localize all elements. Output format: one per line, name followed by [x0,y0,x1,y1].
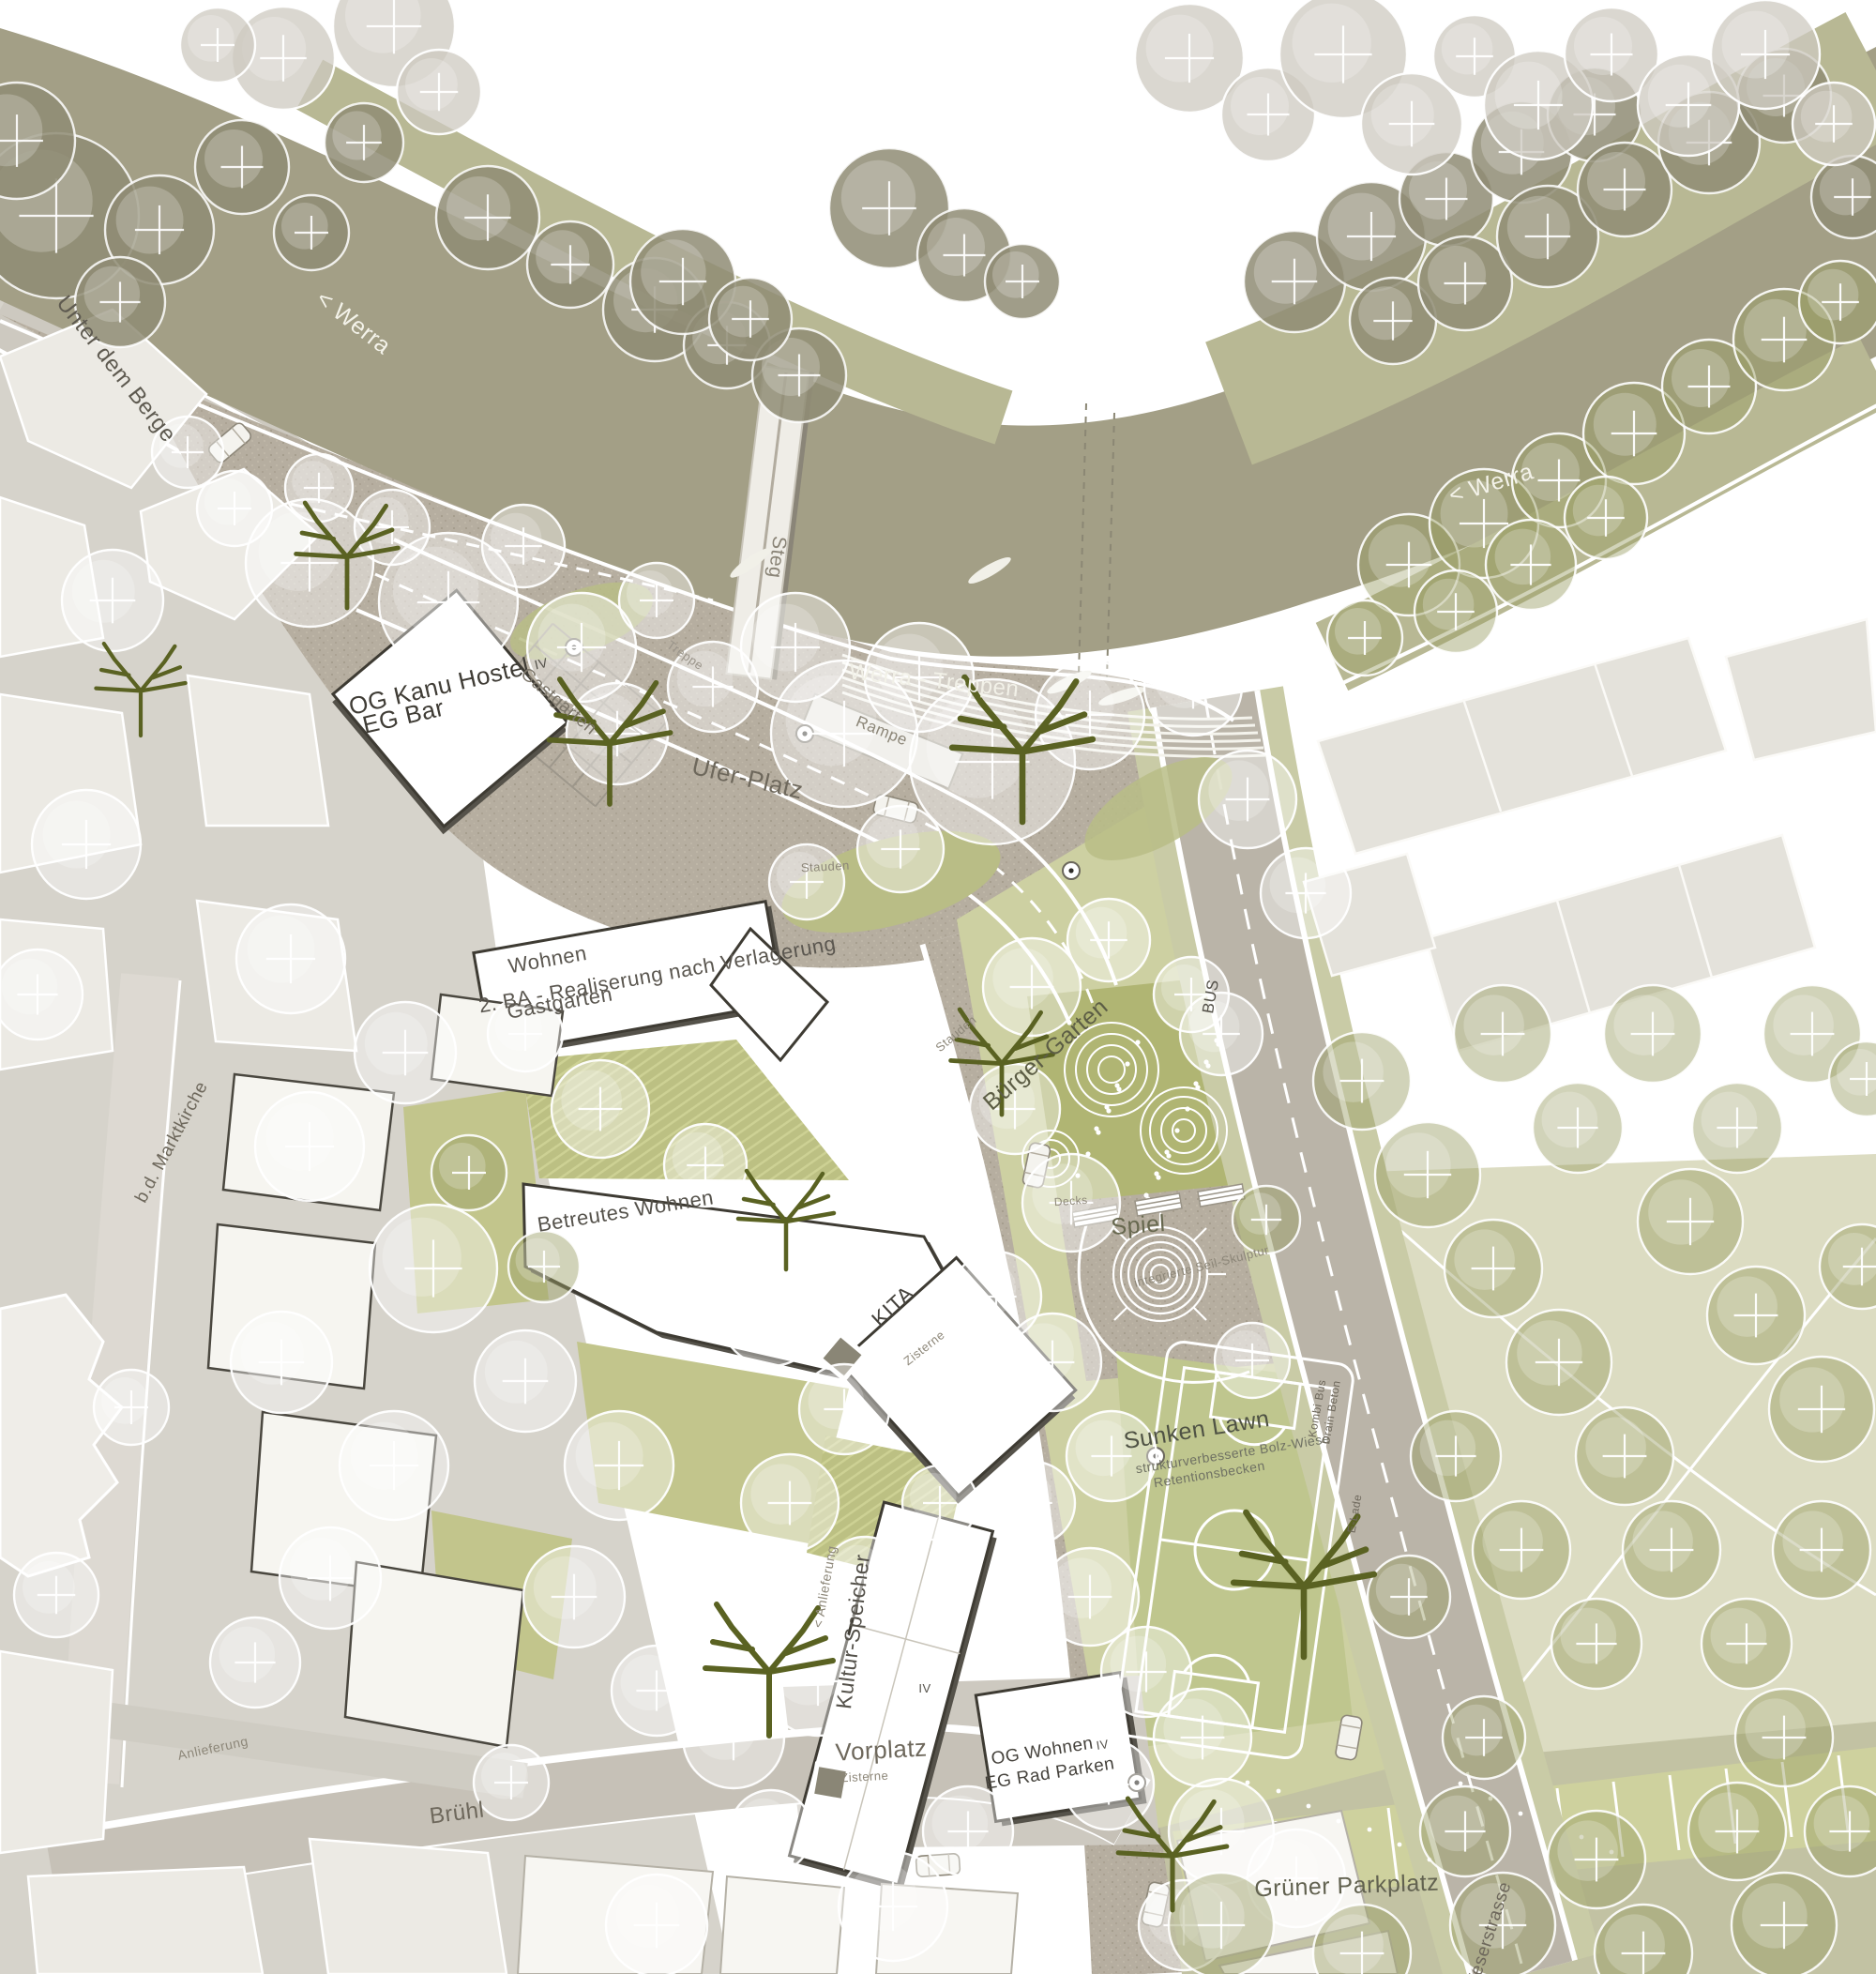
tree-ghost [857,806,944,892]
tree-olive [1604,985,1702,1083]
tree-olive [1707,1267,1805,1364]
planting-dot [1193,1081,1198,1086]
tree-olive [1799,261,1876,343]
tree-olive [1533,1083,1623,1173]
tree-ghost [619,563,694,638]
tree-ghost [0,949,83,1040]
tree-olive [1473,1501,1570,1599]
tree-ghost [1041,1548,1139,1646]
tree-paper [397,50,481,134]
map-label: Vorplatz [835,1733,928,1766]
planting-dot [1519,1812,1523,1816]
planting-dot [1277,1789,1281,1794]
tree-ghost [992,1462,1075,1544]
planting-dot [1307,1804,1311,1809]
tree-olive [1702,1599,1792,1689]
tree-ghost [769,844,844,919]
tree-olive [1375,1122,1480,1227]
tree-ghost [482,505,565,587]
tree-ghost [236,904,345,1013]
planting-dot [1185,1106,1189,1111]
tree-ghost [370,1205,497,1332]
tree-ghost [923,1786,1013,1876]
tree-ghost [565,1411,673,1520]
planting-dot [1143,1192,1148,1197]
planting-dot [1174,1128,1179,1132]
planting-dot [1154,1171,1158,1176]
tree-olive [1454,985,1551,1083]
planting-dot [1398,1843,1402,1847]
tree-olive [1443,1696,1525,1779]
tree-ghost [280,1527,381,1629]
map-label: Spiel [1110,1210,1166,1240]
tree-bank [195,120,289,214]
map-label: IV [1096,1737,1110,1753]
tree-olive [1692,1083,1782,1173]
tree-ghost [1199,751,1296,848]
tree-ghost [62,550,163,651]
tree-olive [1551,1599,1641,1689]
tree-ghost [285,454,353,522]
tree-bank [274,195,349,270]
tree-olive [1565,477,1647,559]
tree-olive [1506,1310,1611,1415]
tree-paper [180,8,255,83]
tree-ghost [355,1002,456,1103]
tree-paper [1793,83,1875,165]
planting-dot [1337,1819,1341,1824]
tree-olive [1420,1786,1510,1876]
tree-ghost [1144,638,1242,736]
tree-ghost [730,1790,812,1873]
tree-bank [527,221,613,308]
tree-olive [1486,520,1576,610]
tree-ghost [741,1454,839,1552]
tree-ghost [670,1552,760,1642]
tree-ghost [231,1312,332,1413]
tree-ghost [1261,848,1351,938]
tree-olive [1415,570,1497,653]
tree-olive [1773,1501,1870,1599]
tree-ghost [523,1546,625,1648]
tree-olive [508,1231,580,1302]
tree-ghost [1004,1313,1101,1411]
tree-ghost [474,1745,549,1820]
tree-ghost [552,1060,649,1158]
planting-dot [1164,1149,1169,1154]
tree-bank [1578,143,1672,236]
tree-bank [709,278,792,360]
tree-olive [1445,1220,1542,1317]
planting-dot [1125,1061,1129,1066]
tree-ghost [799,1364,889,1454]
tree-olive [1732,1873,1837,1974]
lamp-symbol [1063,862,1080,879]
tree-ghost [606,1875,707,1974]
planting-dot [1104,1104,1109,1109]
tree-bank [985,244,1060,319]
planting-dot [1114,1083,1119,1087]
tree-olive [1623,1501,1720,1599]
tree-olive [1735,1689,1833,1786]
tree-olive [1368,1556,1450,1638]
tree-bank [436,166,539,269]
tree-bank [325,103,403,182]
tree-ghost [839,1852,947,1961]
tree-ghost [255,1092,364,1201]
tree-olive [1638,1169,1743,1274]
tree-ghost [14,1553,98,1637]
tree-ghost [1215,1323,1290,1398]
tree-olive [1313,1032,1411,1130]
map-label: Decks [1053,1193,1088,1208]
tree-olive [1327,600,1402,676]
tree-ghost [1154,1689,1251,1786]
planting-dot [1459,1782,1463,1786]
map-label: Zisterne [840,1769,889,1785]
tree-ghost [210,1617,300,1708]
tree-ghost [94,1370,169,1445]
planting-dot [1135,1040,1140,1044]
tree-ghost [340,1411,448,1520]
tree-olive [431,1135,507,1210]
planting-dot [1368,1828,1372,1832]
planting-dot [1094,1126,1098,1131]
tree-olive [1576,1407,1673,1505]
site-plan: Unter dem Berge< Werra< WerraStegOG Kanu… [0,0,1876,1974]
site-plan-drawing: Unter dem Berge< Werra< WerraStegOG Kanu… [0,0,1876,1974]
tree-olive [1769,1357,1874,1462]
tree-ghost [902,1465,977,1541]
tree-olive [1548,1811,1645,1908]
tree-ghost [720,1265,822,1366]
tree-ghost [32,790,141,899]
tree-ghost [1067,899,1150,981]
map-label: IV [918,1681,930,1695]
tree-paper [1711,0,1820,109]
tree-ghost [475,1330,576,1432]
tree-olive [1411,1411,1501,1501]
map-label: Stauden [800,858,850,875]
tree-olive [1688,1783,1786,1880]
